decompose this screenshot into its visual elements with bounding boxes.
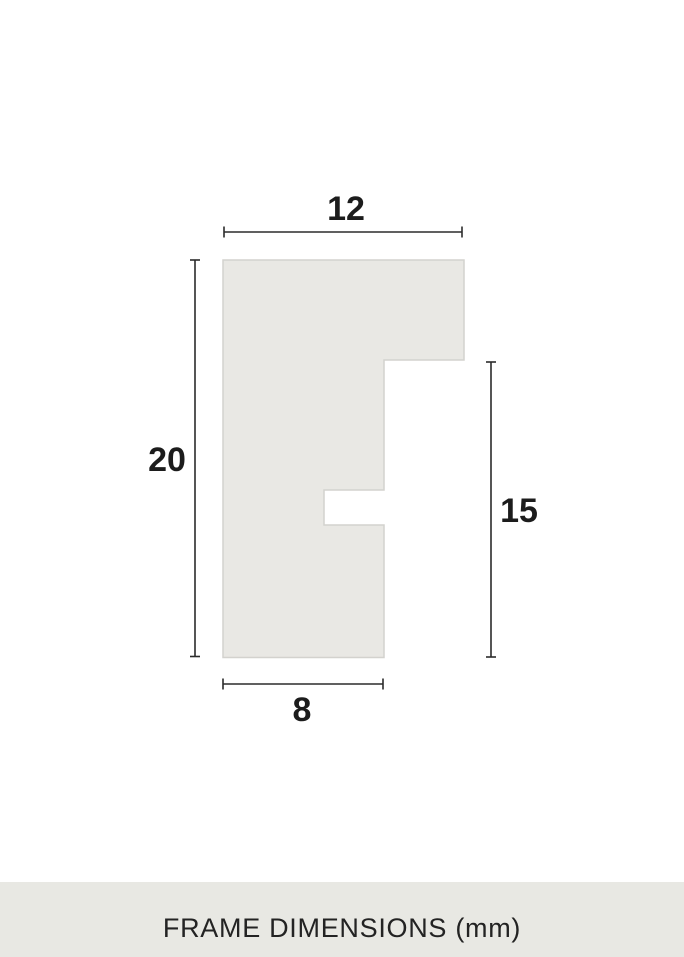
svg-text:15: 15 (500, 492, 538, 530)
svg-text:12: 12 (327, 190, 365, 228)
svg-text:FRAME DIMENSIONS (mm): FRAME DIMENSIONS (mm) (163, 913, 521, 943)
svg-text:20: 20 (148, 441, 186, 479)
svg-text:8: 8 (293, 691, 312, 729)
